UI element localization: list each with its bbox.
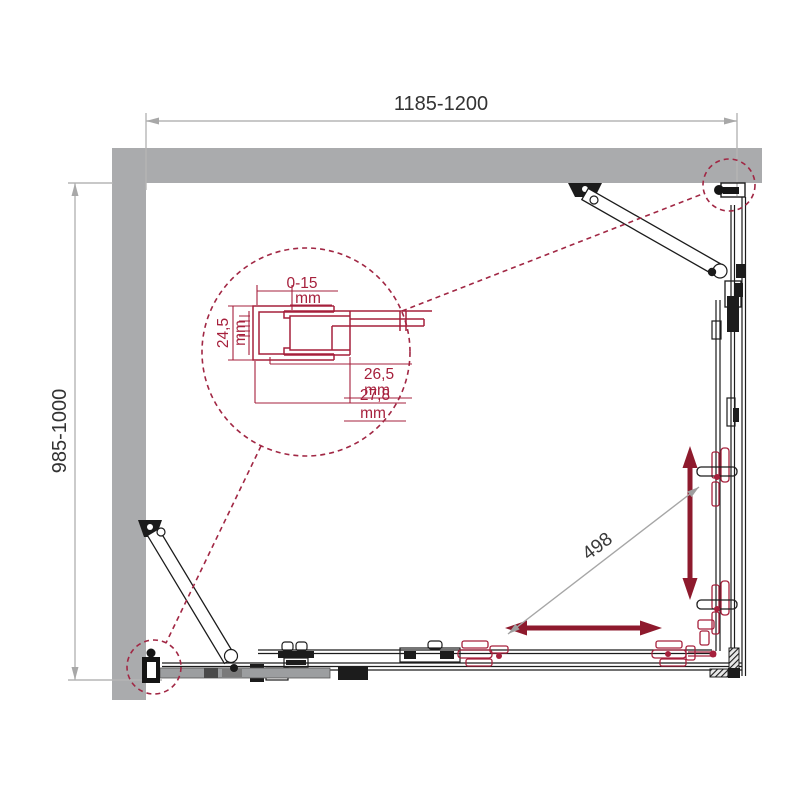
support-arm-top-right bbox=[568, 183, 727, 278]
right-rail-hardware-top bbox=[712, 264, 746, 426]
bottom-guide-profile bbox=[160, 668, 330, 678]
inner-width-value: 26,5 bbox=[364, 366, 394, 383]
slide-arrow-horizontal bbox=[505, 621, 662, 636]
slide-arrow-vertical bbox=[683, 446, 698, 600]
width-range-label: 1185-1200 bbox=[394, 93, 488, 115]
detail-outer-profile bbox=[253, 306, 334, 360]
shower-enclosure-drawing: 498 bbox=[0, 0, 800, 800]
enclosure-structure bbox=[142, 183, 746, 683]
profile-depth-unit: mm bbox=[232, 320, 249, 346]
wall-top bbox=[112, 148, 762, 183]
wall-left bbox=[112, 148, 146, 700]
detail-glass-panel bbox=[284, 311, 432, 331]
detail-inner-profile bbox=[290, 316, 350, 350]
wall-bracket-top-right bbox=[714, 183, 745, 197]
outer-width-unit: mm bbox=[360, 405, 386, 422]
detail-view: 0-15 mm 24,5 mm 26,5 mm 27,8 mm bbox=[215, 275, 432, 422]
gap-unit: mm bbox=[295, 290, 321, 307]
door-travel-label: 498 bbox=[579, 529, 617, 565]
detail-leader-bottom bbox=[166, 446, 261, 643]
outer-width-value: 27,8 bbox=[360, 387, 390, 404]
profile-depth-value: 24,5 bbox=[215, 318, 232, 348]
dimension-door-travel: 498 bbox=[508, 487, 699, 634]
detail-leader-top bbox=[402, 193, 705, 311]
depth-range-label: 985-1000 bbox=[49, 389, 71, 474]
technical-drawing-canvas: 498 bbox=[0, 0, 800, 800]
